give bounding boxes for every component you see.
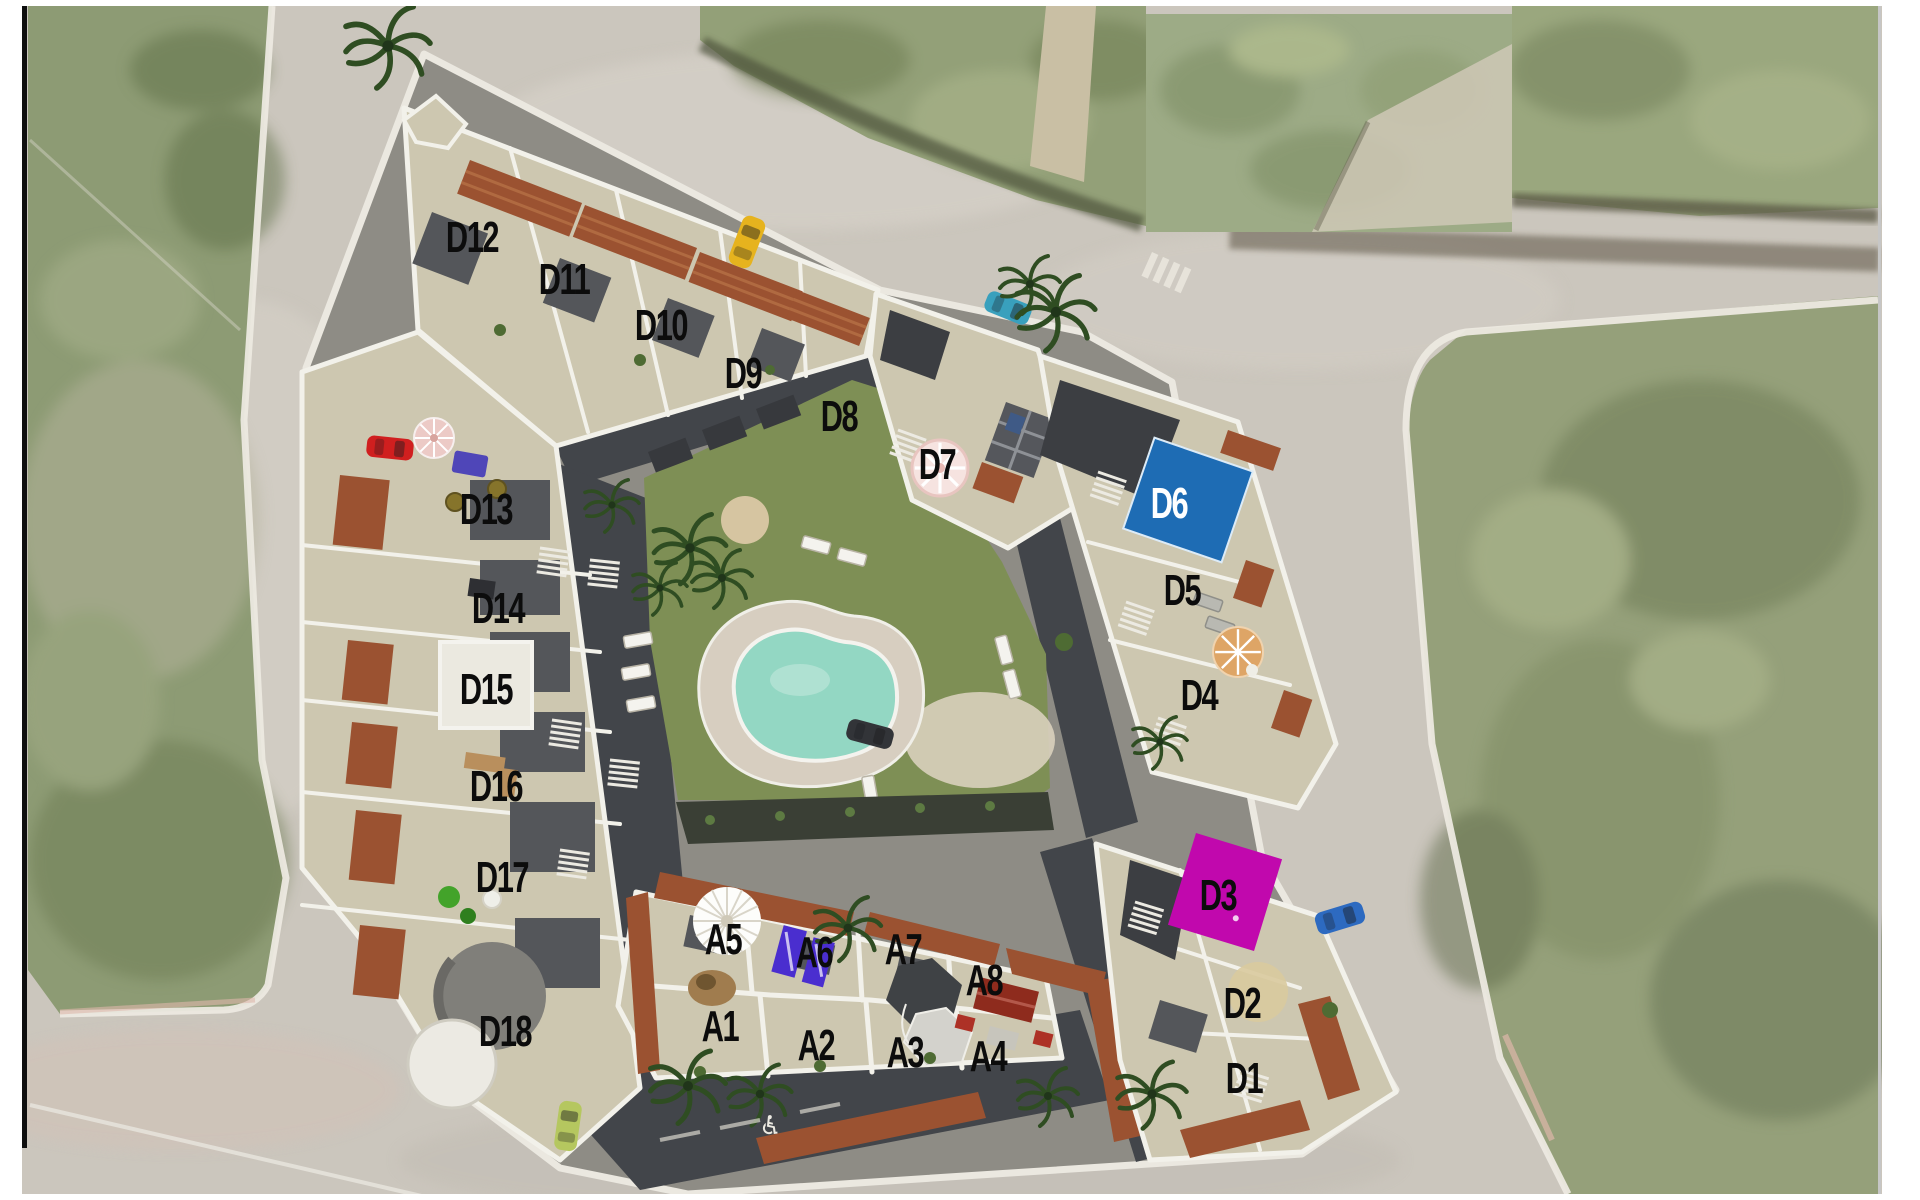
unit-label-d7: D7 <box>919 443 956 487</box>
unit-label-d18: D18 <box>479 1010 531 1054</box>
unit-label-d15: D15 <box>460 668 512 712</box>
unit-label-a4: A4 <box>970 1035 1007 1079</box>
unit-label-a3: A3 <box>887 1031 924 1075</box>
unit-label-d11: D11 <box>539 258 590 302</box>
unit-label-a6: A6 <box>796 931 833 975</box>
unit-label-d16: D16 <box>470 765 522 809</box>
unit-label-d14: D14 <box>472 587 524 631</box>
unit-labels-layer: D12 D11 D10 D9 D8 D7 D6 D5 D4 D3 D2 D1 D… <box>0 0 1920 1200</box>
unit-label-d17: D17 <box>476 856 528 900</box>
unit-label-a5: A5 <box>705 918 742 962</box>
unit-label-d3: D3 <box>1200 874 1237 918</box>
unit-label-a1: A1 <box>702 1005 739 1049</box>
unit-label-d4: D4 <box>1181 674 1218 718</box>
unit-label-d12: D12 <box>446 216 498 260</box>
unit-label-d6: D6 <box>1151 482 1188 526</box>
unit-label-d10: D10 <box>635 304 687 348</box>
unit-label-a8: A8 <box>966 959 1003 1003</box>
unit-label-d2: D2 <box>1224 982 1261 1026</box>
unit-label-d5: D5 <box>1164 569 1201 613</box>
unit-label-d13: D13 <box>460 488 512 532</box>
unit-label-d1: D1 <box>1226 1057 1263 1101</box>
unit-label-a7: A7 <box>885 928 922 972</box>
unit-label-d8: D8 <box>821 395 858 439</box>
site-plan-screenshot: ♿ D12 D11 D10 D9 D8 D7 D6 D5 D4 D3 D2 D1… <box>0 0 1920 1200</box>
unit-label-a2: A2 <box>798 1024 835 1068</box>
unit-label-d9: D9 <box>725 352 762 396</box>
